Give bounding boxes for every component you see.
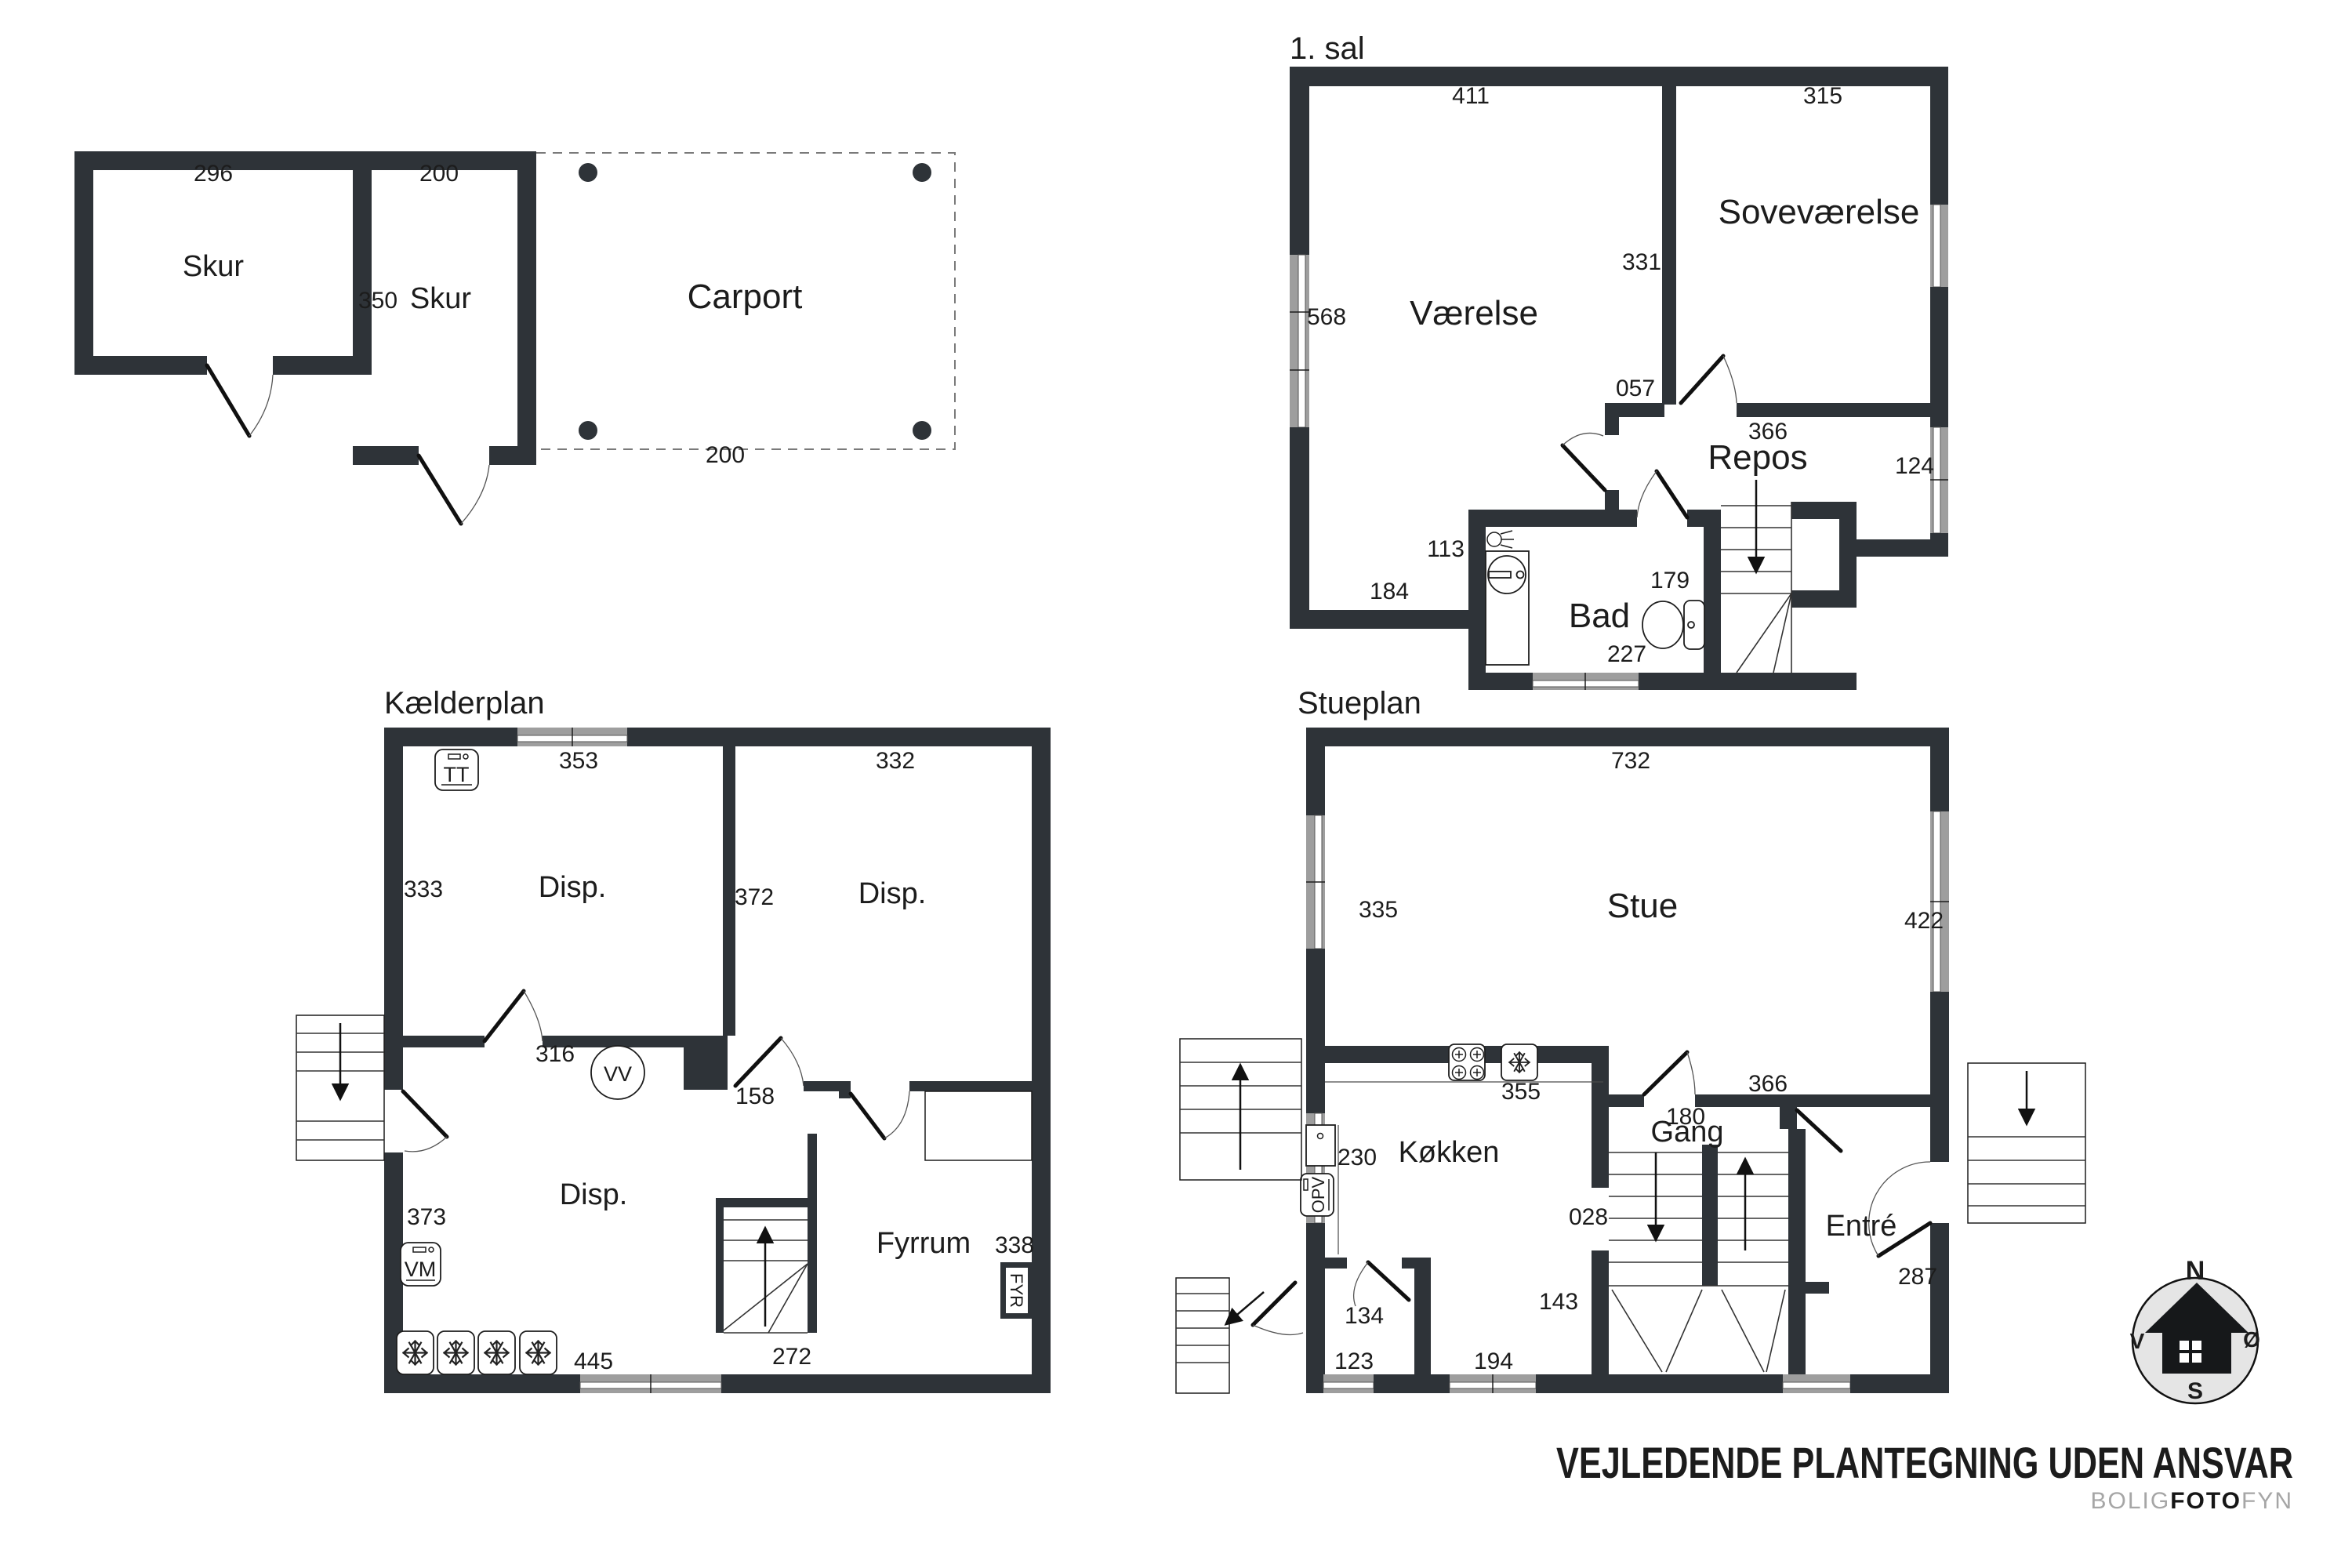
dimension-label: 373: [407, 1204, 446, 1230]
dimension-label: 028: [1569, 1204, 1608, 1230]
carport-post: [579, 163, 597, 182]
dimension-label: 316: [535, 1041, 575, 1067]
stove-icon: [1449, 1044, 1485, 1080]
tumble-dryer-icon: TT: [435, 750, 478, 790]
svg-text:VV: VV: [604, 1062, 632, 1086]
dimension-label: 372: [735, 884, 774, 910]
room-label: Repos: [1708, 438, 1807, 477]
dimension-label: 158: [735, 1083, 775, 1109]
dimension-label: 287: [1898, 1264, 1937, 1290]
kitchen-sink: [1306, 1125, 1335, 1166]
dimension-label: 124: [1895, 453, 1934, 479]
dimension-label: 411: [1452, 83, 1490, 109]
dimension-label: 230: [1338, 1145, 1377, 1171]
floorplan-page: 296 200 Skur 350 Skur Carport 200 1. sal: [0, 0, 2352, 1568]
dimension-label: 366: [1748, 1071, 1788, 1097]
svg-text:FYR: FYR: [1007, 1273, 1026, 1308]
dimension-label: 350: [358, 288, 397, 314]
fixture-outline: [925, 1091, 1032, 1160]
disclaimer-text: VEJLEDENDE PLANTEGNING UDEN ANSVAR: [1556, 1438, 2293, 1487]
dimension-label: 732: [1611, 748, 1650, 774]
dimension-label: 331: [1622, 249, 1661, 275]
dimension-label: 353: [559, 748, 598, 774]
dimension-label: 315: [1803, 83, 1842, 109]
boiler-icon: FYR: [1000, 1262, 1033, 1319]
freezer-icon: [478, 1331, 515, 1374]
room-label: Skur: [183, 250, 244, 283]
dimension-label: 057: [1616, 376, 1655, 401]
shower-icon: [1487, 531, 1514, 548]
washing-machine-icon: VM: [401, 1243, 441, 1286]
external-stair: [1968, 1063, 2085, 1223]
carport-post: [579, 421, 597, 440]
room-label: Entré: [1826, 1210, 1897, 1243]
dimension-label: 332: [876, 748, 915, 774]
toilet: [1642, 601, 1704, 649]
dimension-label: 194: [1474, 1348, 1513, 1374]
room-label: Soveværelse: [1719, 193, 1920, 231]
compass-north-label: N: [2186, 1256, 2205, 1286]
room-label: Gang: [1651, 1116, 1724, 1149]
dimension-label: 200: [419, 161, 459, 187]
dishwasher-icon: OPV: [1301, 1174, 1334, 1216]
compass-west-label: V: [2130, 1329, 2145, 1353]
dimension-label: 422: [1904, 908, 1944, 934]
plan-first-floor: 1. sal: [1290, 31, 1948, 690]
wall: [74, 151, 536, 170]
brand-part-bolig: BOLIG: [2091, 1488, 2171, 1514]
dimension-label: 296: [194, 161, 233, 187]
dimension-label: 184: [1370, 579, 1409, 604]
carport-post: [913, 163, 931, 182]
plan-title: Kælderplan: [384, 686, 545, 720]
dimension-label: 143: [1539, 1289, 1578, 1315]
room-label: Disp.: [560, 1178, 628, 1211]
dimension-label: 355: [1501, 1079, 1541, 1105]
dimension-label: 568: [1307, 304, 1346, 330]
plan-outbuilding: 296 200 Skur 350 Skur Carport 200: [74, 151, 955, 524]
room-label: Værelse: [1410, 294, 1538, 332]
compass-south-label: S: [2187, 1378, 2203, 1404]
dimension-label: 200: [706, 442, 745, 468]
room-label: Carport: [688, 278, 803, 316]
dimension-label: 123: [1334, 1348, 1374, 1374]
dimension-label: 113: [1427, 536, 1465, 562]
room-label: Køkken: [1399, 1136, 1500, 1169]
dimension-label: 179: [1650, 568, 1690, 593]
brand-part-foto: FOTO: [2170, 1488, 2241, 1514]
dimension-label: 227: [1607, 641, 1646, 667]
external-stair: [1176, 1278, 1303, 1393]
plan-basement: Kælderplan: [296, 686, 1051, 1393]
plan-title: Stueplan: [1298, 686, 1421, 720]
door-leaf: [207, 365, 249, 436]
svg-text:OPV: OPV: [1308, 1176, 1328, 1213]
floorplan-canvas: 296 200 Skur 350 Skur Carport 200 1. sal: [0, 0, 2352, 1568]
compass-rose: N S V Ø: [2130, 1256, 2260, 1404]
dimension-label: 272: [772, 1344, 811, 1370]
svg-text:VM: VM: [405, 1258, 437, 1281]
plan-ground-floor: Stueplan: [1176, 686, 2085, 1393]
freezer-icon: [397, 1331, 434, 1374]
room-label: Bad: [1569, 597, 1630, 635]
external-stair: [1180, 1039, 1301, 1180]
refrigerator-icon: [1501, 1044, 1537, 1080]
carport-post: [913, 421, 931, 440]
plan-title: 1. sal: [1290, 31, 1365, 66]
freezer-icon: [520, 1331, 557, 1374]
dimension-label: 338: [995, 1232, 1034, 1258]
door-leaf: [419, 456, 461, 524]
room-label: Fyrrum: [877, 1227, 971, 1260]
brand-part-fyn: FYN: [2241, 1488, 2293, 1514]
freezer-icon: [437, 1331, 474, 1374]
footer: VEJLEDENDE PLANTEGNING UDEN ANSVAR BOLIG…: [1556, 1438, 2293, 1514]
svg-text:TT: TT: [444, 763, 470, 786]
room-label: Skur: [410, 282, 471, 315]
brand-logo: BOLIGFOTOFYN: [2091, 1488, 2293, 1514]
compass-east-label: Ø: [2243, 1327, 2260, 1352]
dimension-label: 335: [1359, 897, 1398, 923]
water-heater-icon: VV: [591, 1046, 644, 1099]
room-label: Disp.: [539, 871, 607, 904]
dimension-label: 445: [574, 1348, 613, 1374]
dimension-label: 134: [1345, 1303, 1384, 1329]
room-label: Disp.: [858, 877, 927, 910]
room-label: Stue: [1607, 887, 1679, 925]
dimension-label: 333: [404, 877, 443, 902]
